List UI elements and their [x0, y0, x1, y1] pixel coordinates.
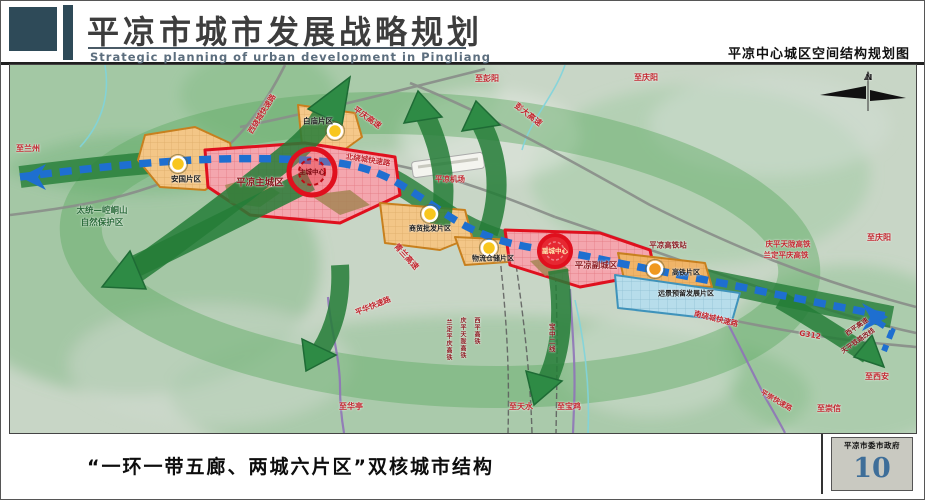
map-label-to-qingyang-right: 至庆阳	[867, 234, 891, 242]
map-label-qingpingtianlong-hsr: 庆平天陇高铁	[766, 240, 811, 248]
map-label-sub-center-label: 副城中心	[542, 248, 568, 255]
map-label-zone-anguo-label: 安国片区	[171, 175, 201, 183]
map-label-zone-sub-city-label: 平凉副城区	[575, 262, 618, 271]
map-label-rail-landingpingqing-v: 兰定平庆高铁	[445, 319, 451, 361]
map-label-rail-xiping-v: 西平高铁	[473, 317, 479, 345]
map-label-zone-hsr-label: 高铁片区	[672, 270, 700, 277]
title-underline	[88, 47, 466, 49]
government-box: 平凉市委市政府 10	[831, 437, 913, 491]
map-label-to-huating: 至华亭	[339, 403, 363, 411]
map-label-to-qingyang-top: 至庆阳	[634, 74, 658, 82]
map-label-nature-reserve-line1: 太统—崆峒山	[76, 207, 127, 216]
map-label-compass-n: N	[866, 74, 873, 82]
map-label-landingpingqing-hsr: 兰定平庆高铁	[764, 251, 809, 259]
map-label-zone-logistics-label: 物流仓储片区	[472, 256, 514, 263]
map-label-to-xian: 至西安	[865, 373, 889, 381]
map-label-to-chongxin: 至崇信	[817, 405, 841, 413]
map-label-zone-trade-label: 商贸批发片区	[409, 226, 451, 233]
map-label-to-tianshui: 至天水	[509, 403, 533, 411]
government-label: 平凉市委市政府	[844, 440, 900, 451]
footer: “一环一带五廊、两城六片区”双核城市结构 平凉市委市政府 10	[1, 434, 924, 498]
page-number: 10	[853, 451, 891, 486]
header-square-decoration	[9, 7, 57, 51]
map-label-zone-future-label: 远景预留发展片区	[658, 291, 714, 298]
footer-right-panel: 平凉市委市政府 10	[821, 434, 919, 494]
map-label-nature-reserve-line2: 自然保护区	[81, 219, 124, 228]
map-canvas	[10, 65, 916, 433]
map-label-rail-baozhong-v: 宝中二线	[548, 323, 555, 353]
page: 平凉市城市发展战略规划 Strategic planning of urban …	[0, 0, 925, 500]
header: 平凉市城市发展战略规划 Strategic planning of urban …	[1, 1, 924, 65]
map-label-rail-qingpingtianlong-v: 庆平天陇高铁	[459, 317, 465, 359]
map-label-zone-main-city-label: 平凉主城区	[236, 178, 284, 188]
map-label-hsr-station-label: 平凉高铁站	[649, 241, 687, 249]
map-label-zone-baimiao-label: 白庙片区	[303, 117, 333, 125]
header-bar-decoration	[63, 5, 73, 60]
footer-caption: “一环一带五廊、两城六片区”双核城市结构	[87, 452, 494, 479]
map-caption: 平凉中心城区空间结构规划图	[728, 43, 910, 62]
map-label-to-baoji: 至宝鸡	[557, 403, 581, 411]
planning-map: 至兰州太统—崆峒山自然保护区安国片区平凉主城区主城中心白庙片区西绕城快速路平庆高…	[9, 64, 917, 434]
map-label-main-center-label: 主城中心	[299, 169, 325, 176]
page-subtitle-en: Strategic planning of urban development …	[90, 50, 491, 64]
map-label-to-pengyang: 至彭阳	[475, 75, 499, 83]
map-label-to-lanzhou: 至兰州	[16, 145, 40, 153]
map-label-airport-label: 平凉机场	[435, 175, 465, 183]
